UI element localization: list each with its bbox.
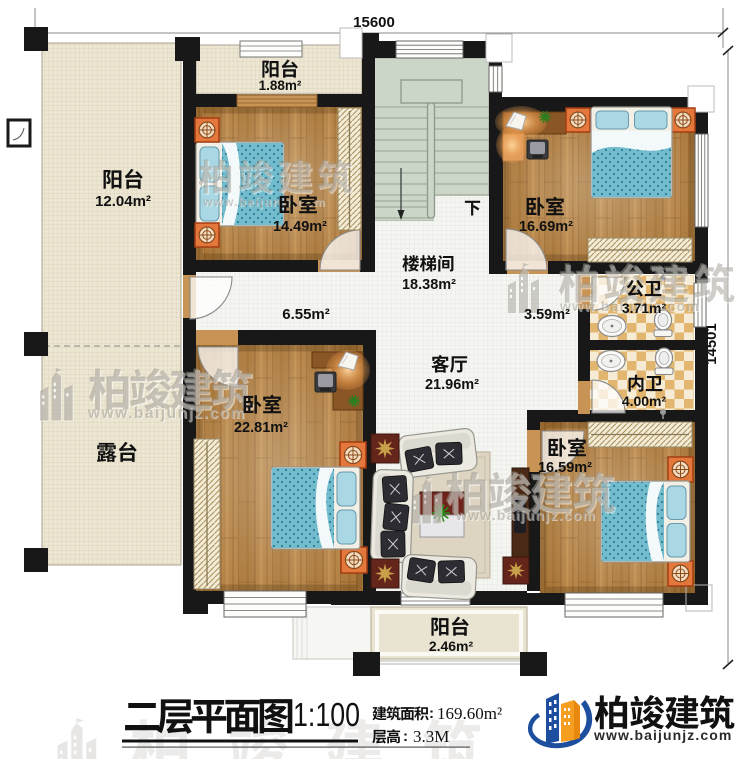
svg-text:12.04m²: 12.04m²: [95, 193, 151, 210]
svg-text:www.baijunjz.com: www.baijunjz.com: [87, 405, 246, 422]
svg-text:14.49m²: 14.49m²: [273, 219, 327, 235]
svg-text:3.3M: 3.3M: [413, 727, 449, 746]
svg-text:18.38m²: 18.38m²: [402, 277, 456, 293]
svg-text:22.81m²: 22.81m²: [234, 420, 288, 436]
svg-text::: :: [403, 728, 408, 745]
svg-text:3.59m²: 3.59m²: [524, 307, 570, 323]
svg-text:16.69m²: 16.69m²: [519, 219, 573, 235]
svg-text:1:100: 1:100: [293, 696, 360, 733]
svg-text:4.00m²: 4.00m²: [622, 393, 667, 409]
svg-text:2.46m²: 2.46m²: [429, 638, 474, 654]
svg-text:21.96m²: 21.96m²: [425, 377, 479, 393]
svg-text:16.59m²: 16.59m²: [538, 460, 592, 476]
svg-text:www.baijunjz.com: www.baijunjz.com: [455, 507, 596, 523]
svg-text::: :: [429, 705, 434, 722]
svg-text:3.71m²: 3.71m²: [622, 300, 667, 316]
svg-text:www.baijunjz.com: www.baijunjz.com: [593, 727, 732, 743]
svg-text:6.55m²: 6.55m²: [282, 306, 330, 323]
svg-text:169.60m²: 169.60m²: [437, 704, 502, 723]
svg-text:1.88m²: 1.88m²: [259, 78, 302, 93]
